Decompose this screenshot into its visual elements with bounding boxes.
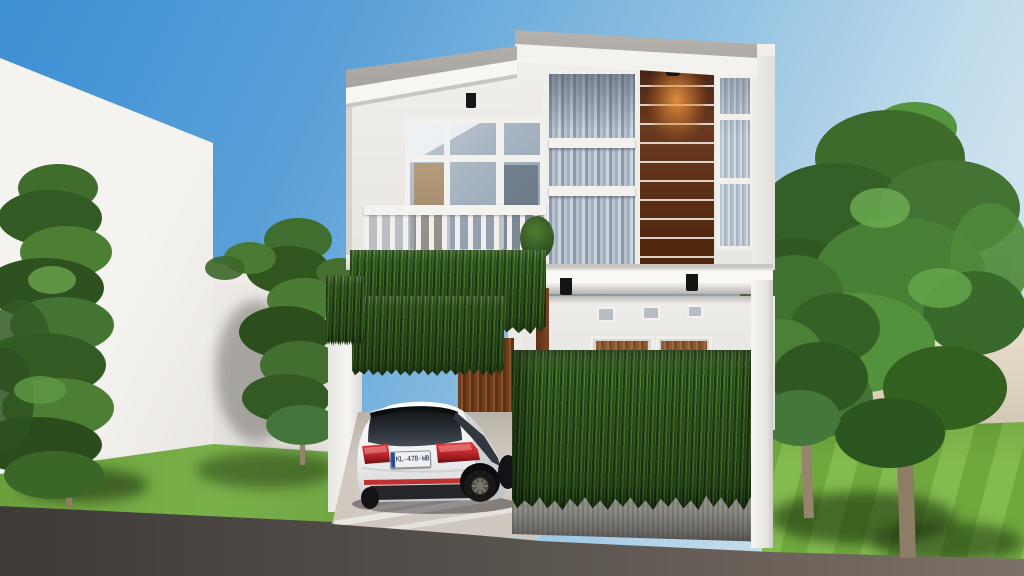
window-mullion bbox=[720, 178, 750, 184]
car-rear-window bbox=[368, 406, 462, 446]
ground-window bbox=[687, 305, 703, 318]
car bbox=[350, 396, 518, 518]
car-taillight-left bbox=[362, 444, 390, 464]
railing-top-rail bbox=[364, 205, 546, 215]
balcony-railing bbox=[364, 205, 546, 257]
railing-balusters bbox=[364, 215, 546, 253]
window-transom bbox=[410, 155, 540, 162]
roof-parapet-rear bbox=[515, 28, 757, 80]
balcony-vines bbox=[352, 296, 504, 376]
left-trees bbox=[0, 160, 362, 570]
curtain-wall-window bbox=[543, 74, 641, 266]
canopy-shadow bbox=[517, 294, 773, 304]
ground-window bbox=[642, 306, 660, 320]
canopy-downlight bbox=[686, 274, 698, 291]
plate-number: KL-478-WB bbox=[395, 455, 430, 463]
curtain-wall-band bbox=[549, 186, 635, 196]
window-mullion bbox=[720, 114, 750, 120]
canopy-downlight bbox=[560, 278, 572, 295]
right-trees bbox=[740, 88, 1024, 572]
license-plate: KL-478-WB bbox=[390, 450, 432, 468]
fence-vine-spill bbox=[326, 276, 364, 346]
scene-rendering: KL-478-WB bbox=[0, 0, 1024, 576]
curtain-wall-band bbox=[549, 138, 635, 148]
eave-downlight bbox=[466, 93, 476, 108]
conifer-tree-foliage bbox=[0, 164, 343, 499]
car-taillight-right bbox=[436, 442, 480, 463]
window-upper-right bbox=[716, 74, 754, 250]
corner-pillar bbox=[751, 280, 773, 548]
ground-window bbox=[597, 307, 615, 322]
roof-front-left bbox=[344, 44, 519, 108]
facade-corner-right bbox=[752, 56, 775, 270]
tree-foliage bbox=[740, 102, 1024, 468]
vine-hedge bbox=[512, 350, 764, 510]
wood-accent-panel bbox=[640, 68, 714, 266]
